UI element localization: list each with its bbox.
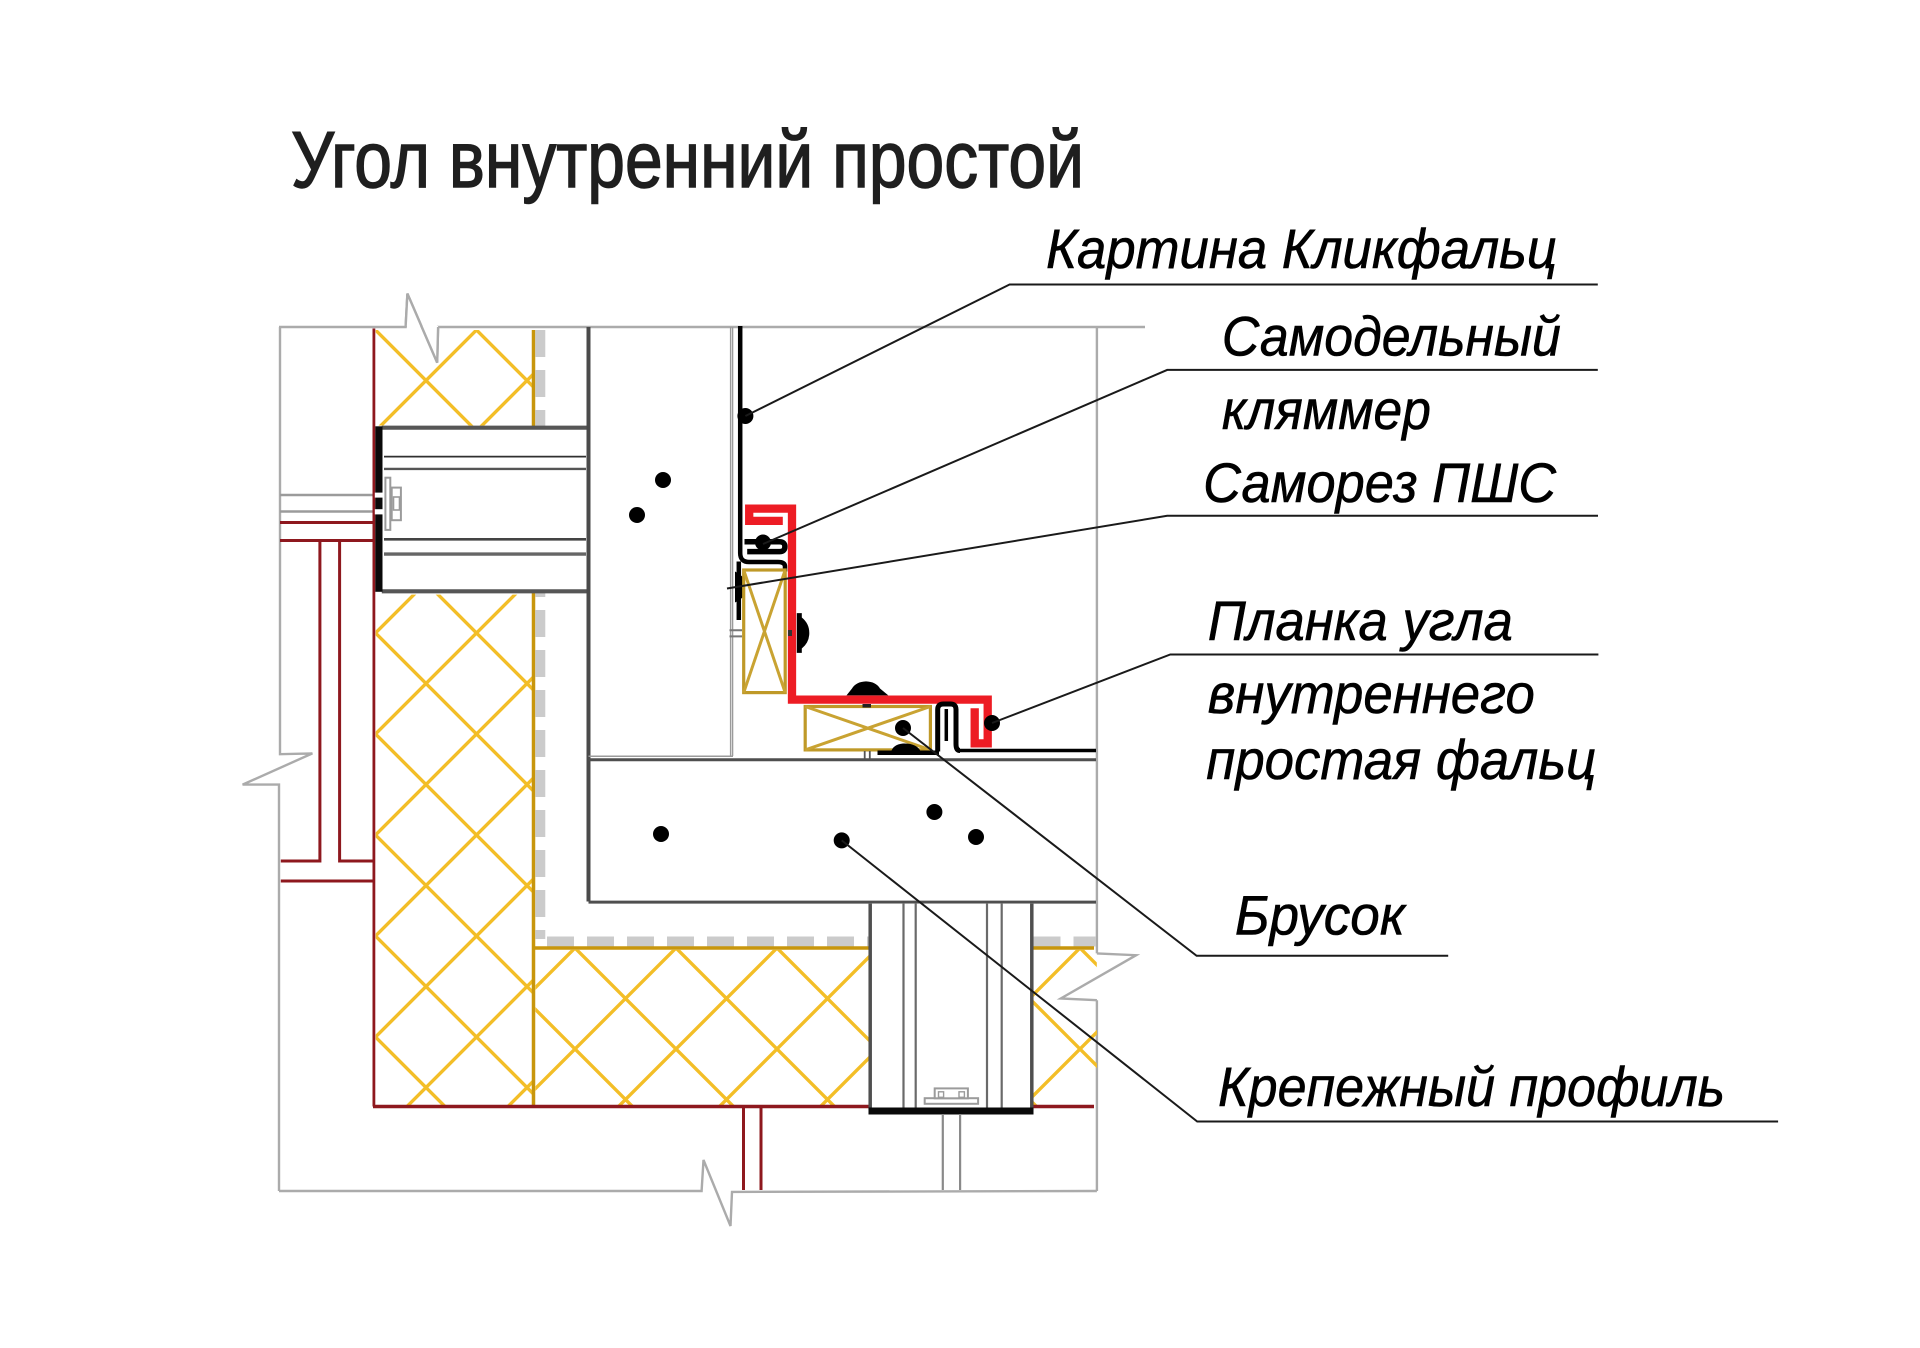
- svg-text:Угол внутренний простой: Угол внутренний простой: [291, 115, 1084, 204]
- svg-text:Самодельный: Самодельный: [1222, 304, 1561, 367]
- svg-text:внутреннего: внутреннего: [1208, 662, 1535, 725]
- svg-text:простая фальц: простая фальц: [1206, 728, 1596, 791]
- svg-text:Саморез ПШС: Саморез ПШС: [1203, 451, 1557, 514]
- svg-text:Крепежный профиль: Крепежный профиль: [1218, 1055, 1725, 1118]
- svg-text:кляммер: кляммер: [1222, 378, 1431, 441]
- svg-text:Брусок: Брусок: [1235, 884, 1407, 947]
- svg-text:Картина Кликфальц: Картина Кликфальц: [1046, 217, 1557, 280]
- svg-text:Планка угла: Планка угла: [1208, 589, 1513, 652]
